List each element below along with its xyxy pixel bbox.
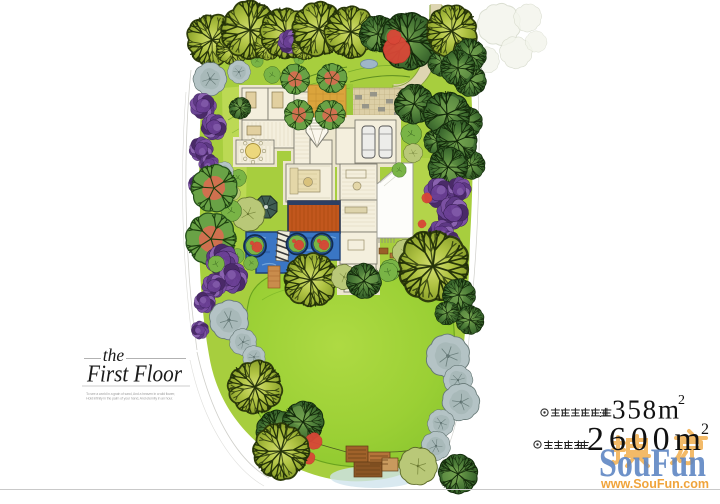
- svg-text:Hold infinity in the palm of y: Hold infinity in the palm of your hand, …: [86, 397, 173, 401]
- svg-text:To see a world in a grain of s: To see a world in a grain of sand, And a…: [86, 392, 175, 396]
- svg-text::: :: [599, 409, 602, 419]
- svg-text:358m: 358m: [612, 395, 679, 425]
- svg-text:2: 2: [701, 421, 709, 438]
- svg-text:2: 2: [678, 393, 685, 408]
- svg-text::: :: [576, 441, 579, 451]
- svg-text:www.SouFun.com: www.SouFun.com: [600, 477, 709, 491]
- svg-text:First Floor: First Floor: [86, 362, 182, 388]
